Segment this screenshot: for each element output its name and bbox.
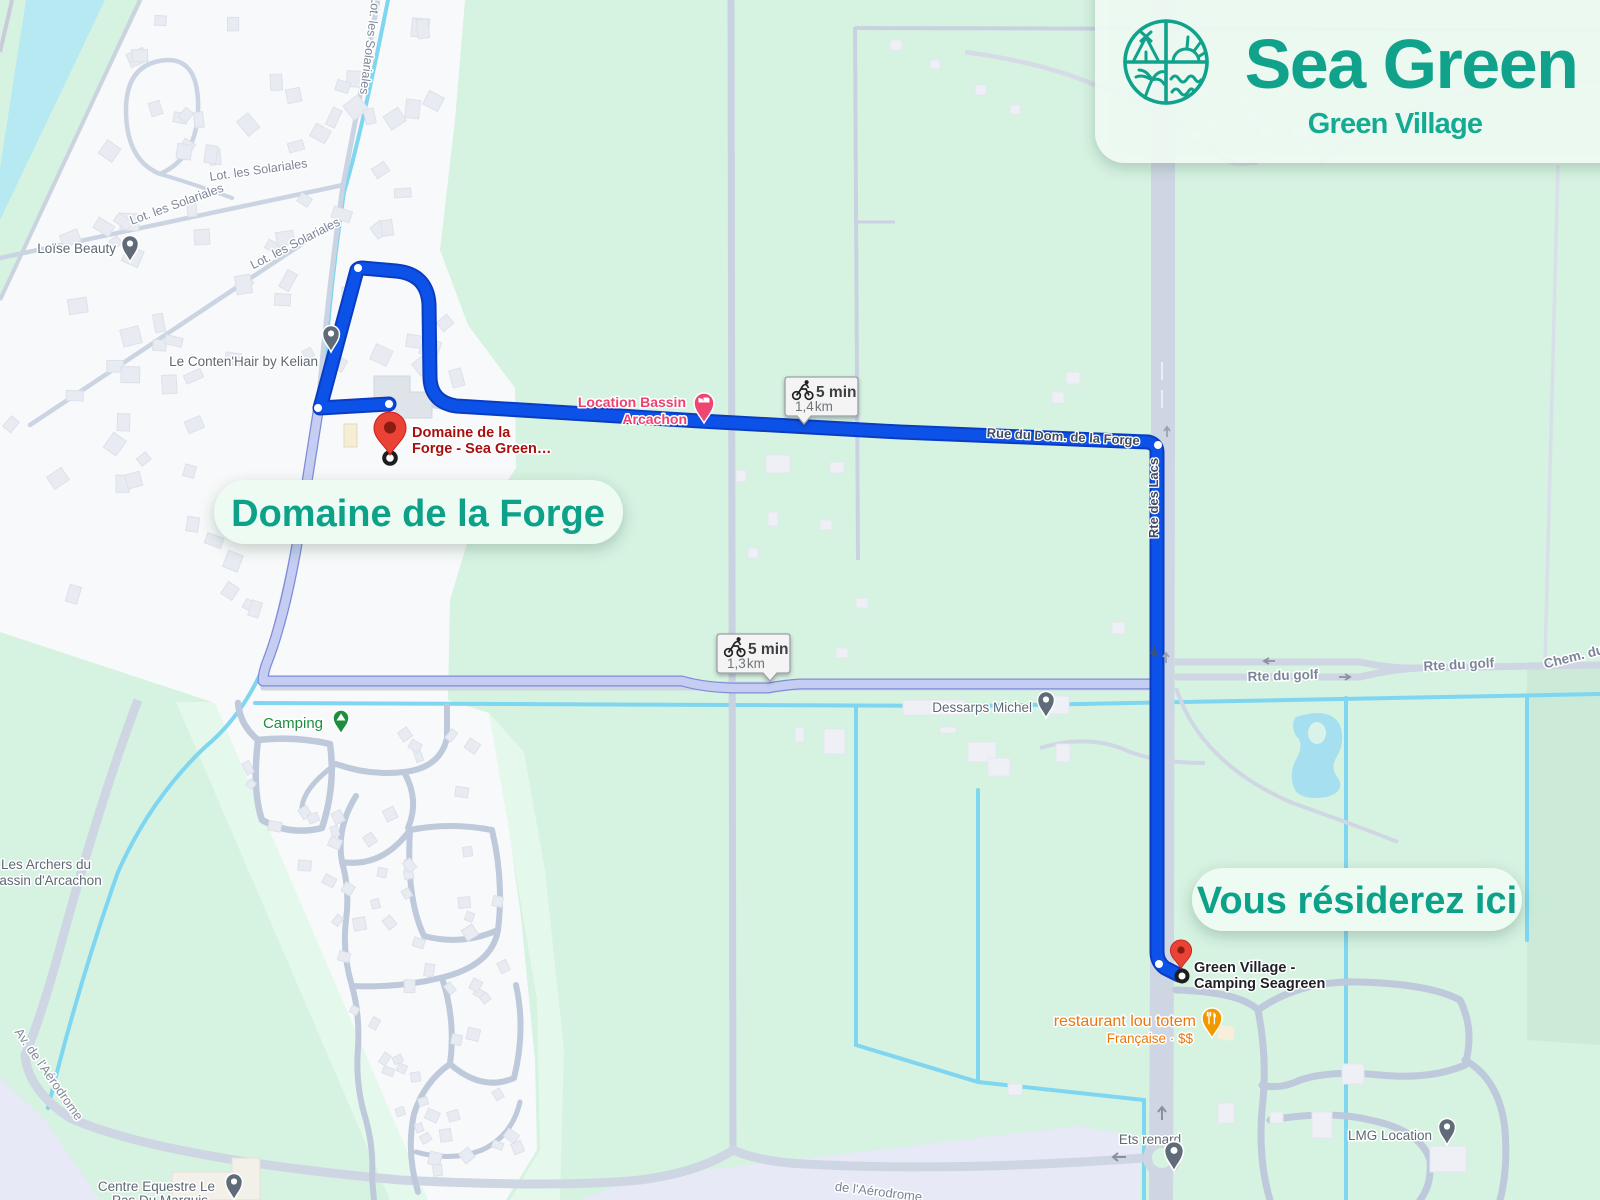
svg-text:Dessarps Michel: Dessarps Michel (932, 700, 1032, 715)
svg-text:Rte des Lacs: Rte des Lacs (1146, 458, 1161, 538)
svg-text:Camping: Camping (263, 715, 323, 732)
svg-text:Le Conten'Hair by Kelian: Le Conten'Hair by Kelian (169, 354, 318, 369)
svg-text:Green Village: Green Village (1308, 108, 1483, 140)
svg-text:LMG Location: LMG Location (1348, 1128, 1432, 1143)
svg-text:Green Village -: Green Village - (1194, 960, 1295, 976)
svg-text:Domaine de la Forge: Domaine de la Forge (231, 493, 605, 535)
svg-text:Française · $$: Française · $$ (1107, 1031, 1194, 1046)
svg-text:Sea Green: Sea Green (1245, 25, 1578, 103)
svg-text:Pas Du Marquis: Pas Du Marquis (112, 1193, 208, 1200)
svg-text:Domaine de la: Domaine de la (412, 425, 511, 441)
svg-text:Rte du golf: Rte du golf (1247, 667, 1318, 684)
svg-text:Arcachon: Arcachon (622, 411, 687, 427)
svg-text:Camping Seagreen: Camping Seagreen (1194, 976, 1325, 992)
svg-text:Forge - Sea Green…: Forge - Sea Green… (412, 441, 551, 457)
svg-text:1,3 km: 1,3 km (727, 656, 765, 671)
svg-text:1,4 km: 1,4 km (795, 399, 833, 414)
svg-text:Bassin d'Arcachon: Bassin d'Arcachon (0, 873, 102, 888)
svg-text:Loïse Beauty: Loïse Beauty (37, 241, 116, 256)
svg-text:Centre Equestre Le: Centre Equestre Le (98, 1179, 215, 1194)
svg-text:Vous résiderez ici: Vous résiderez ici (1197, 880, 1517, 922)
svg-text:restaurant lou totem: restaurant lou totem (1054, 1013, 1196, 1030)
svg-text:Location Bassin: Location Bassin (578, 394, 686, 410)
svg-text:Les Archers du: Les Archers du (1, 857, 91, 872)
